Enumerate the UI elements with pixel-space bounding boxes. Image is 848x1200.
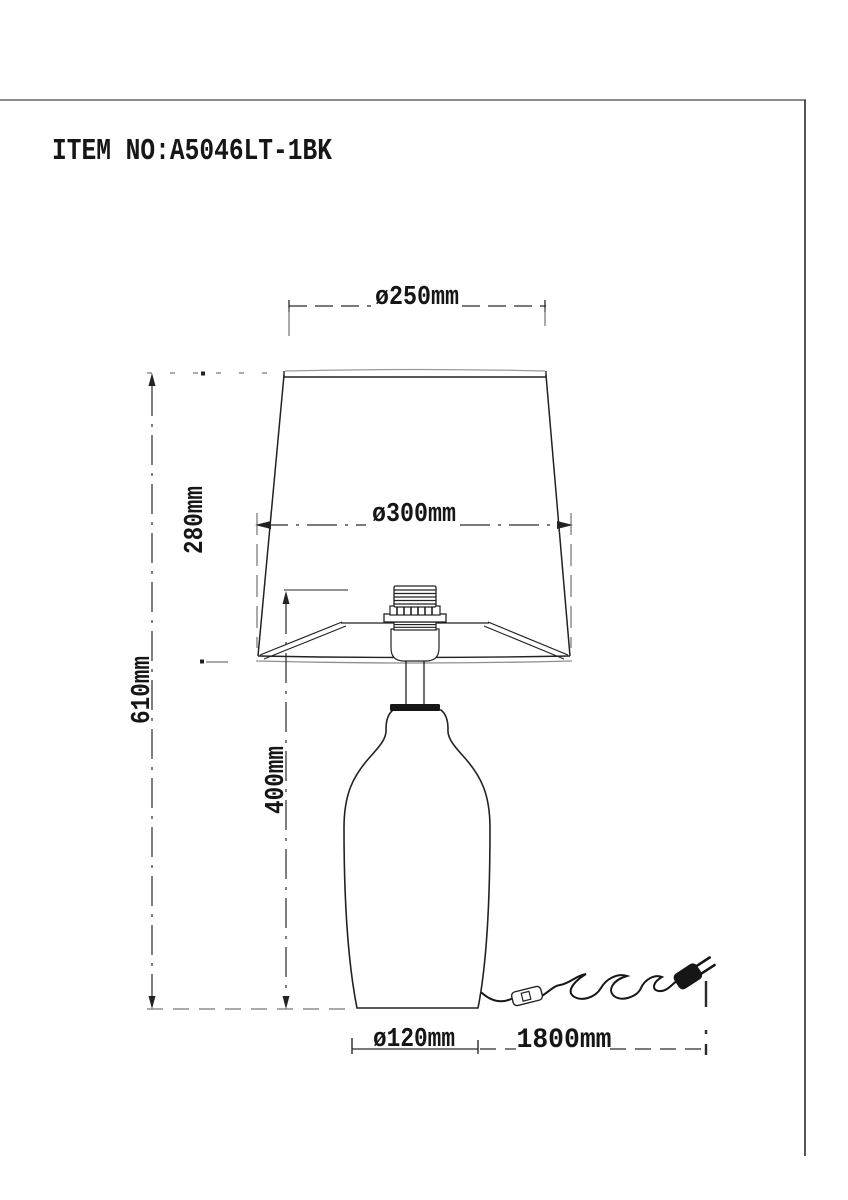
lamp-base xyxy=(344,704,490,1008)
base-top-cap xyxy=(390,704,440,711)
dim-label-shade-top-diameter: ø250mm xyxy=(375,283,459,313)
shade-right-side xyxy=(546,375,570,656)
cord-tangle xyxy=(540,974,678,999)
dim-label-cord-length: 1800mm xyxy=(517,1025,612,1056)
dim-tick-bottom xyxy=(200,660,204,664)
shade-inner-rim-right-outer xyxy=(488,622,568,655)
dim-arrow-up xyxy=(149,373,156,386)
dim-base-diameter: ø120mm xyxy=(352,1025,478,1055)
power-cord xyxy=(482,953,717,1006)
dim-shade-top-diameter: ø250mm xyxy=(289,283,546,336)
dim-label-shade-height: 280mm xyxy=(181,486,211,554)
dim-total-height: 610mm xyxy=(128,373,158,1009)
plug-prong xyxy=(702,965,715,973)
dim-arrow-down xyxy=(283,996,290,1009)
dim-shade-height: 280mm xyxy=(181,372,228,664)
power-plug xyxy=(672,953,717,991)
shade-top-rim-outer xyxy=(285,370,545,372)
lamp-stem xyxy=(406,661,424,704)
dim-tick-top xyxy=(201,372,205,376)
shade-left-side xyxy=(258,375,284,656)
drawing-page: ITEM NO:A5046LT-1BK xyxy=(0,0,848,1200)
item-number-label: ITEM NO:A5046LT-1BK xyxy=(52,134,332,169)
dim-label-base-diameter: ø120mm xyxy=(373,1025,455,1055)
shade-inner-rim-left-outer xyxy=(260,622,342,655)
dim-label-total-height: 610mm xyxy=(128,656,158,724)
dim-arrow-up xyxy=(283,591,290,604)
dim-arrow-down xyxy=(149,996,156,1009)
base-body xyxy=(344,710,490,1008)
dim-label-shade-bottom-diameter: ø300mm xyxy=(372,500,456,530)
shade-inner-rim-left-inner xyxy=(264,626,346,659)
plug-body xyxy=(672,961,704,991)
dim-base-height: 400mm xyxy=(262,590,348,1009)
inline-switch xyxy=(511,986,543,1007)
dim-label-base-height: 400mm xyxy=(262,746,292,814)
switch-knob xyxy=(521,991,531,1001)
shade-inner-rim-right-inner xyxy=(484,626,564,659)
socket-body xyxy=(391,629,439,661)
cord-segment-to-switch xyxy=(482,993,511,1001)
plug-prong xyxy=(697,957,710,965)
socket-lower-threads xyxy=(394,622,436,630)
